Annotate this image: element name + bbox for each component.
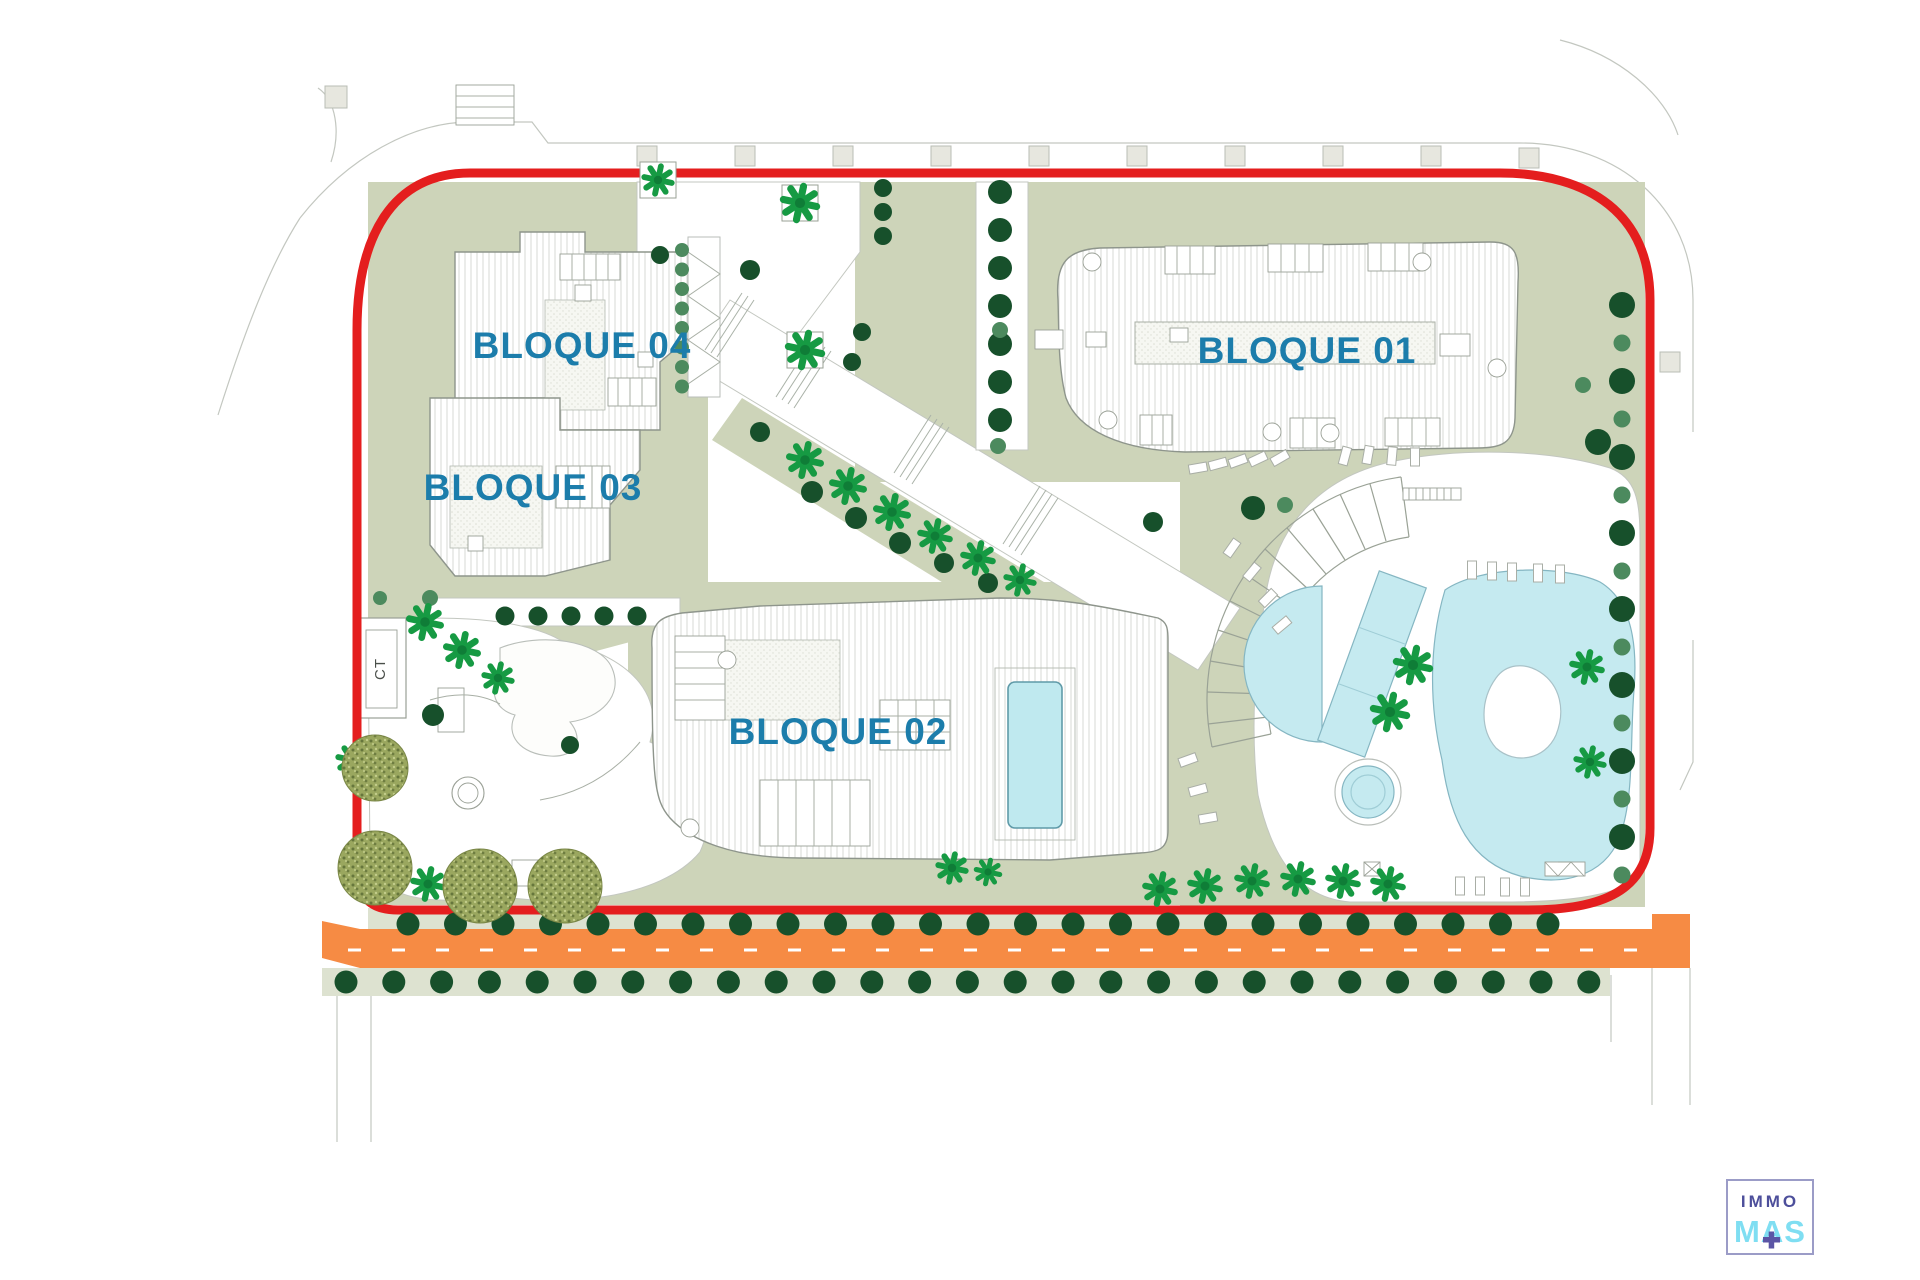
bloque-03-label: BLOQUE 03 <box>424 467 643 508</box>
spa-pool <box>1342 766 1394 818</box>
corridor-truss <box>688 237 720 397</box>
bloque-02-label: BLOQUE 02 <box>729 711 948 752</box>
logo-line1: IMMO <box>1741 1192 1799 1211</box>
immomas-logo: IMMO MAS <box>1727 1180 1813 1254</box>
bloque-01-label: BLOQUE 01 <box>1198 330 1417 371</box>
fountain <box>452 777 484 809</box>
rooftop-pool <box>1008 682 1062 828</box>
lagoon-island <box>1484 666 1561 758</box>
site-plan: CT BLOQUE 04 BLOQUE 03 BLOQUE 01 BLOQUE … <box>0 0 1920 1280</box>
bloque-04-label: BLOQUE 04 <box>473 325 692 366</box>
ct-label: CT <box>372 658 389 680</box>
ct-box: CT <box>358 618 406 718</box>
